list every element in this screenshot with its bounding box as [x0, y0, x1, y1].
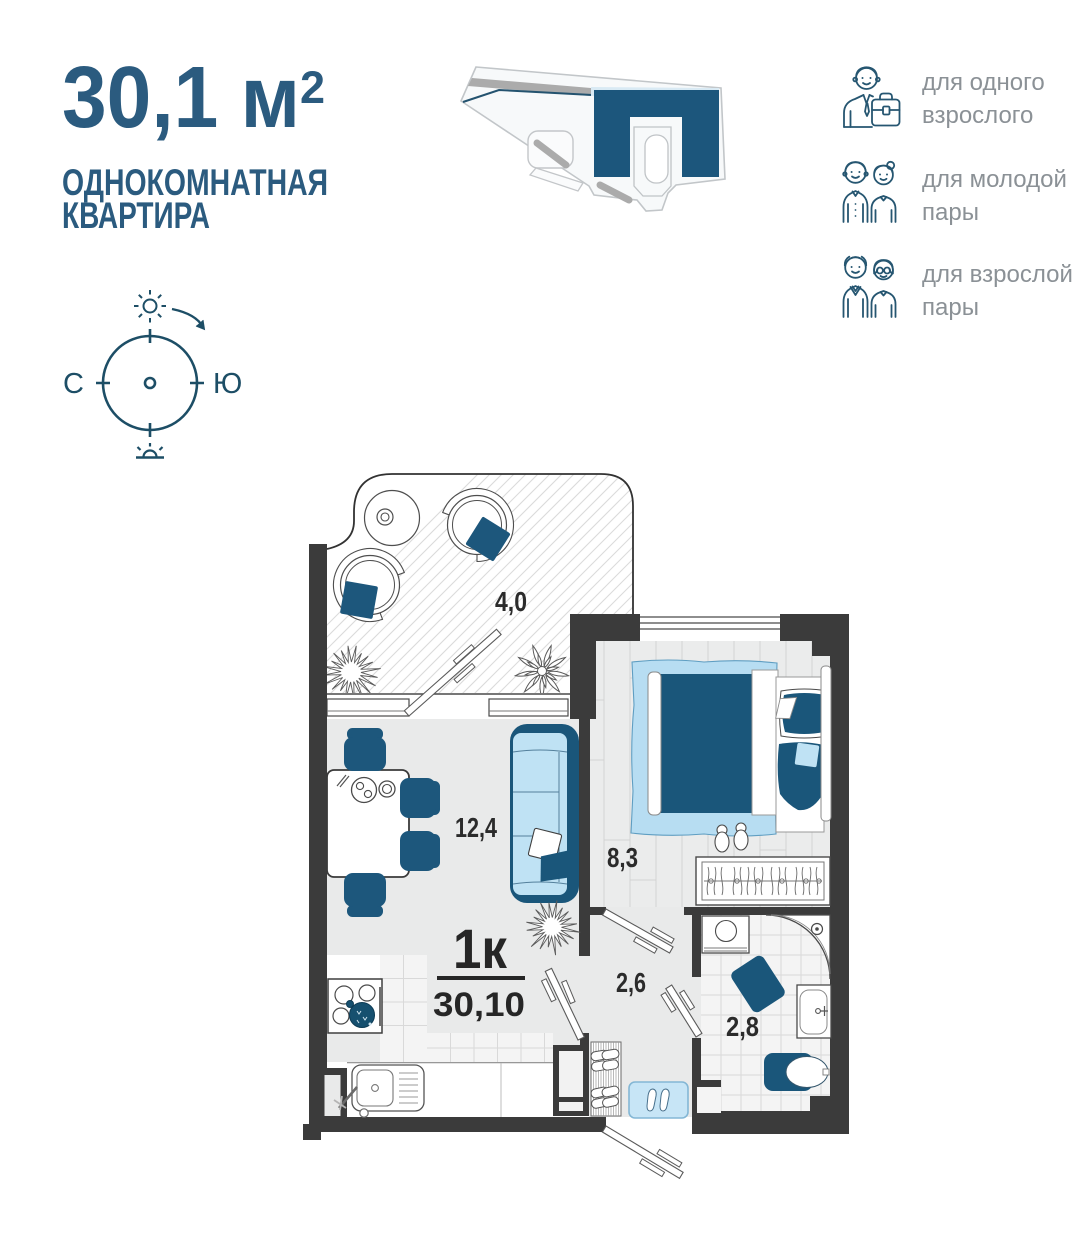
svg-text:2,8: 2,8: [726, 1011, 759, 1042]
svg-text:пары: пары: [922, 199, 979, 226]
svg-text:4,0: 4,0: [495, 586, 527, 617]
svg-text:30,1 м: 30,1 м: [62, 49, 300, 146]
svg-text:пары: пары: [922, 294, 979, 321]
svg-text:для молодой: для молодой: [922, 166, 1067, 193]
svg-text:Ю: Ю: [213, 368, 242, 400]
svg-text:взрослого: взрослого: [922, 102, 1033, 129]
svg-text:8,3: 8,3: [607, 842, 638, 873]
svg-text:2,6: 2,6: [616, 967, 646, 998]
svg-text:для взрослой: для взрослой: [922, 261, 1073, 288]
svg-text:12,4: 12,4: [455, 812, 497, 843]
svg-text:КВАРТИРА: КВАРТИРА: [62, 195, 210, 236]
svg-text:30,10: 30,10: [433, 986, 525, 1024]
svg-text:для одного: для одного: [922, 69, 1045, 96]
svg-text:1к: 1к: [453, 917, 508, 980]
svg-text:С: С: [63, 368, 84, 400]
svg-text:2: 2: [300, 62, 325, 113]
